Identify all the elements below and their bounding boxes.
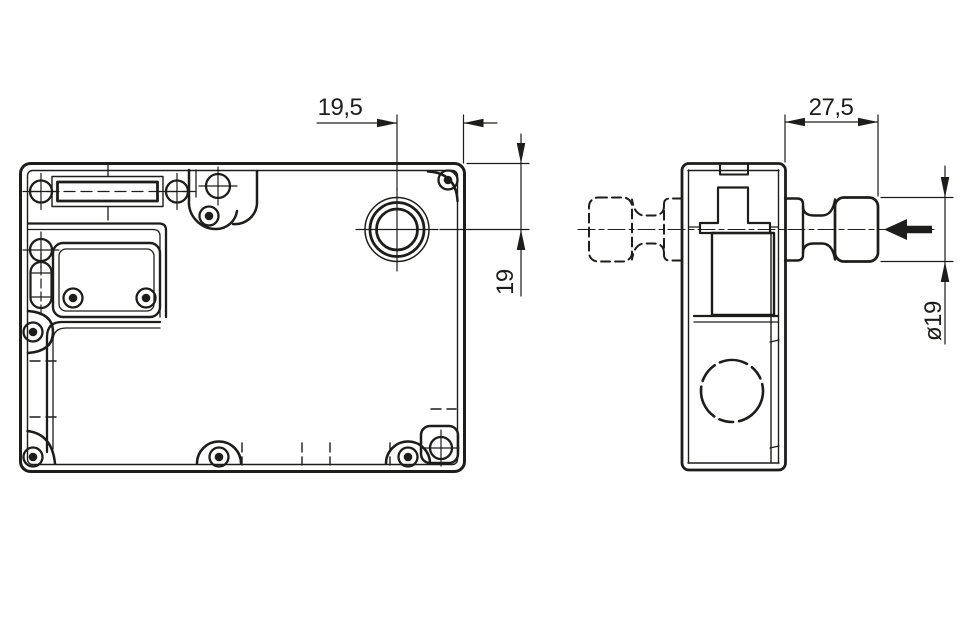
front-view [21, 164, 465, 472]
dimension-arrow-icon [517, 143, 526, 164]
dimension-arrow-icon [941, 262, 950, 283]
dimension-actuator-projection: 27,5 [785, 94, 878, 196]
inner-cover-panel [53, 243, 160, 317]
dimension-arrow-icon [464, 119, 484, 128]
screw-head [24, 448, 43, 467]
dimension-plunger-axis-to-top: 19 [440, 134, 529, 296]
screw-head [210, 448, 229, 467]
dimension-actuator-diameter: ø19 [881, 166, 953, 344]
screw-head [200, 207, 219, 226]
screw-heads [24, 171, 458, 467]
cable-knockout-hole [691, 350, 773, 432]
technical-drawing-page: 19,5 19 27,5 ø19 [0, 0, 976, 622]
dimension-value: 19 [492, 269, 519, 295]
actuation-direction-arrow-icon [884, 219, 932, 240]
dimension-arrow-icon [377, 119, 397, 128]
mounting-hole [199, 167, 237, 205]
safety-switch-dimension-drawing: 19,5 19 27,5 ø19 [0, 0, 976, 622]
label-plate [30, 165, 187, 220]
plunger-bore [356, 188, 438, 271]
dimension-arrow-icon [785, 118, 805, 127]
side-view [578, 164, 938, 471]
dimension-value: ø19 [920, 301, 947, 341]
dimension-arrow-icon [858, 118, 878, 127]
screw-head [64, 289, 83, 308]
dimension-value: 19,5 [318, 94, 363, 121]
dimension-arrow-icon [941, 177, 950, 198]
screw-head [137, 289, 156, 308]
dimension-plunger-axis-to-edge: 19,5 [317, 94, 497, 190]
dimension-arrow-icon [517, 230, 526, 251]
dimension-value: 27,5 [809, 94, 854, 121]
internal-plunger-mechanism [689, 188, 778, 323]
screw-head [439, 171, 458, 190]
mounting-hole [23, 174, 59, 210]
slotted-hole [31, 253, 52, 317]
screw-head [24, 323, 43, 342]
screw-head [399, 448, 418, 467]
